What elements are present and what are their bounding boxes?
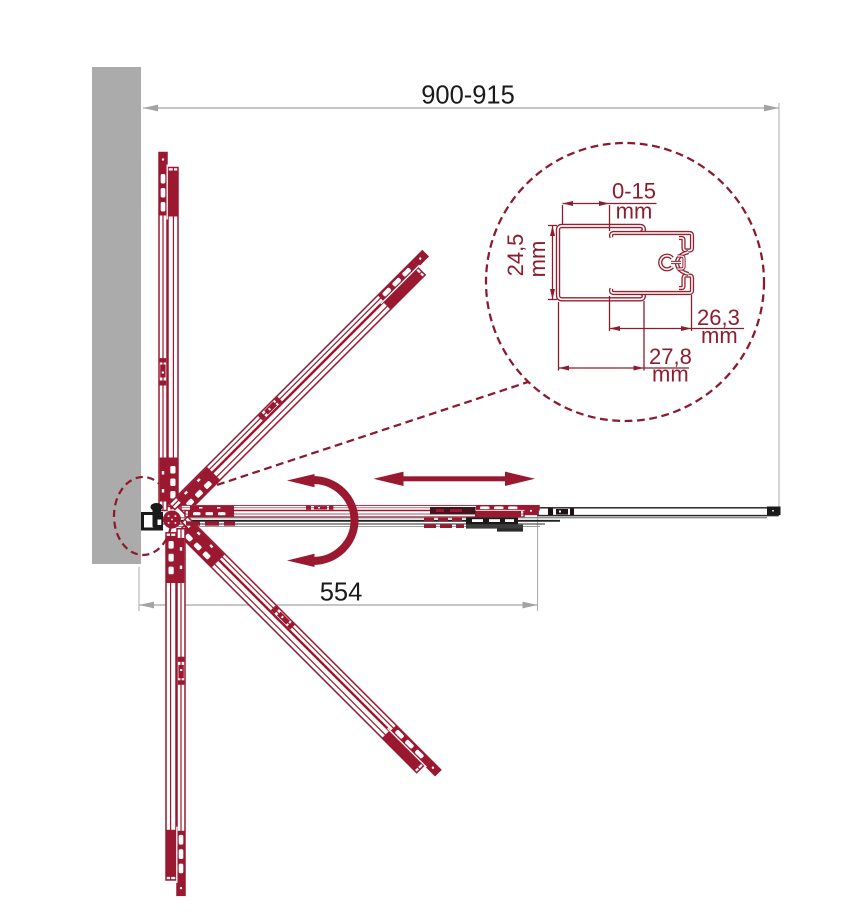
svg-text:mm: mm [525,241,550,278]
svg-text:mm: mm [652,362,689,387]
svg-text:900-915: 900-915 [421,82,515,110]
svg-text:554: 554 [320,579,363,607]
svg-text:mm: mm [701,323,738,348]
svg-text:mm: mm [616,199,653,224]
